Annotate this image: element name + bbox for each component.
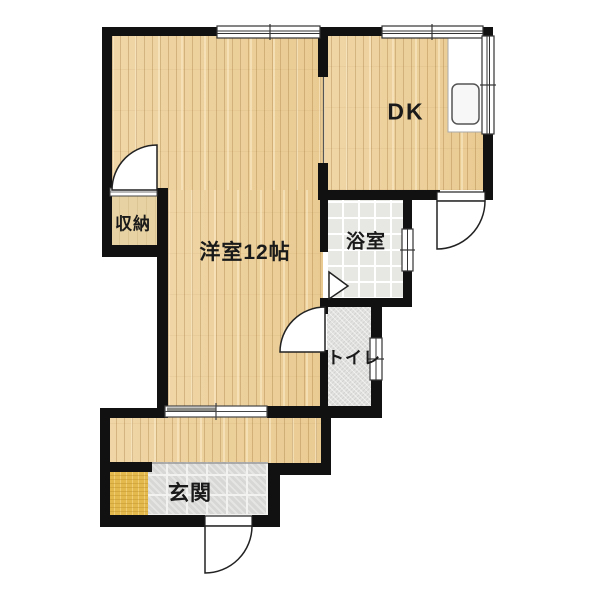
wall-bath-right-upper: [403, 199, 412, 229]
wall-toilet-left-stub: [320, 298, 328, 314]
wall-bottom-right: [252, 515, 280, 527]
entrance-door: [205, 516, 252, 573]
wall-bath-left-upper: [320, 199, 328, 252]
lower-wing-floor: [108, 415, 321, 465]
wall-bath-right-lower: [403, 271, 412, 307]
wall-top-mid: [320, 27, 382, 36]
wall-toilet-right-lower: [371, 380, 382, 418]
floor-plan: 収納 洋室12帖 DK 浴室 トイレ 玄関: [0, 0, 600, 600]
room-label-main: 洋室12帖: [199, 236, 290, 266]
wall-left-upper: [102, 27, 112, 257]
wall-top-left: [102, 27, 217, 36]
room-label-dk: DK: [387, 99, 424, 126]
main-room-floor: [112, 36, 323, 193]
room-label-bath: 浴室: [346, 227, 386, 254]
wall-right-lower: [483, 134, 493, 200]
room-label-entrance: 玄関: [168, 477, 212, 507]
wall-left-mid: [157, 188, 168, 418]
wall-dk-partition-lower: [318, 163, 328, 193]
wall-dk-bottom: [318, 190, 440, 200]
main-room-floor-lower: [168, 190, 323, 418]
wall-bottom-left: [100, 515, 205, 527]
wall-mat-divider: [108, 462, 152, 472]
wall-dk-partition-upper: [318, 36, 328, 77]
wall-top-right-corner: [483, 27, 493, 36]
wall-lower-wing-top: [100, 408, 165, 418]
wall-lower-wing-right: [321, 408, 331, 468]
dk-exterior-door: [437, 192, 485, 249]
entrance-mat: [108, 470, 148, 516]
wall-bath-toilet-divider: [320, 298, 412, 307]
room-label-closet: 収納: [115, 210, 151, 235]
room-label-toilet: トイレ: [327, 344, 381, 369]
